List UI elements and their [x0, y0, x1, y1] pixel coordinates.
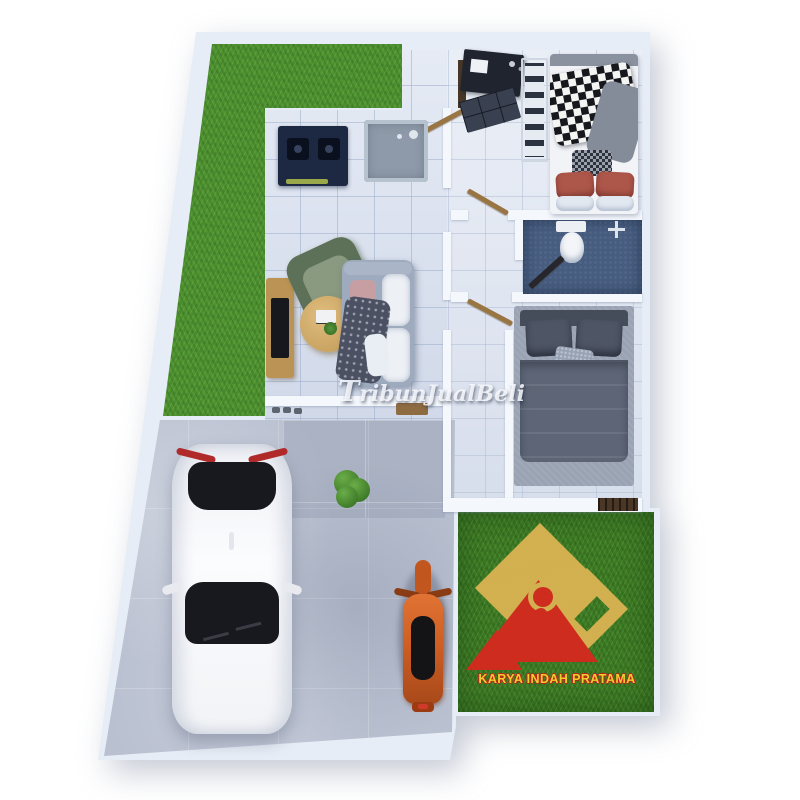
kitchen-stove	[278, 126, 348, 186]
motorcycle-front-fender	[415, 560, 431, 596]
white-car	[172, 444, 292, 734]
wardrobe	[521, 58, 548, 162]
bathroom-left-wall	[515, 220, 523, 260]
porch-shoes	[294, 408, 302, 414]
car-rear-window	[188, 462, 276, 510]
car-windshield	[185, 582, 279, 644]
kitchen-sink	[364, 120, 428, 182]
stove-burner	[318, 138, 340, 160]
white-pillow	[596, 196, 634, 211]
company-name: KARYA INDAH PRATAMA	[466, 672, 648, 686]
terrace-plant	[330, 468, 374, 512]
desk-paper	[470, 59, 488, 74]
hall-wall-lower	[443, 330, 451, 498]
porch-shoes	[283, 407, 291, 413]
bathroom-top-wall-stub	[451, 210, 468, 220]
floor-plan-render: KARYA INDAH PRATAMA TribunJualBeli	[0, 0, 800, 800]
car-roof-detail	[229, 532, 234, 550]
plant-foliage	[336, 486, 358, 508]
rear-wall-vent	[598, 498, 638, 511]
white-pillow	[556, 196, 594, 211]
orange-motorcycle	[394, 560, 452, 714]
red-pillow	[555, 171, 595, 200]
bedroom1-bed	[550, 54, 638, 214]
bathroom-bottom-wall-stub	[451, 292, 468, 302]
table-plant	[324, 322, 337, 335]
site-watermark: TribunJualBeli	[338, 374, 525, 408]
dark-duvet	[520, 360, 628, 462]
stove-trim	[286, 179, 328, 184]
company-logo: KARYA INDAH PRATAMA	[466, 518, 648, 708]
motorcycle-taillight	[418, 704, 428, 709]
bedroom2-bed	[520, 310, 628, 462]
hall-wall-middle	[443, 232, 451, 300]
television	[271, 298, 289, 358]
desk	[460, 49, 524, 97]
motorcycle-seat	[411, 616, 435, 680]
table-books	[316, 310, 336, 323]
shower-fixture	[615, 221, 618, 238]
desk-items	[509, 61, 516, 68]
porch-shoes	[272, 407, 280, 413]
logo-figure-head	[533, 587, 553, 607]
tv-console	[266, 278, 294, 378]
sofa	[342, 260, 414, 386]
toilet-tank	[556, 221, 586, 232]
stove-burner	[287, 138, 309, 160]
bedroom2-left-wall	[505, 330, 513, 498]
red-pillow	[595, 171, 634, 199]
